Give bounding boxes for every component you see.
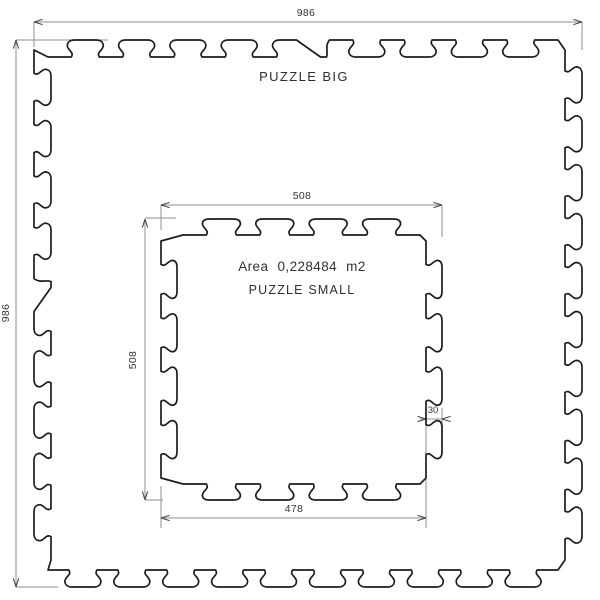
big-tile-outline: [34, 40, 582, 587]
arrowhead: [442, 416, 451, 419]
tooth-depth-dimension-text: 30: [428, 405, 439, 416]
arrowhead: [442, 419, 451, 422]
small-height-dimension-text: 508: [127, 351, 139, 369]
small-bottom-dimension-text: 478: [285, 503, 303, 515]
big-tile-label: PUZZLE BIG: [259, 69, 349, 84]
big-height-dimension-text: 986: [0, 304, 12, 322]
labels: 986 986 PUZZLE BIG 508 508 Area 0,228484…: [0, 7, 438, 515]
drawing-stage: 986 986 PUZZLE BIG 508 508 Area 0,228484…: [0, 0, 600, 600]
dimension-lines: [13, 19, 582, 587]
small-tile-area-text: Area 0,228484 m2: [238, 259, 365, 274]
big-width-dimension-text: 986: [297, 7, 315, 19]
small-width-dimension-text: 508: [293, 190, 311, 202]
small-tile-label: PUZZLE SMALL: [249, 283, 356, 297]
puzzle-technical-drawing: 986 986 PUZZLE BIG 508 508 Area 0,228484…: [0, 0, 600, 600]
